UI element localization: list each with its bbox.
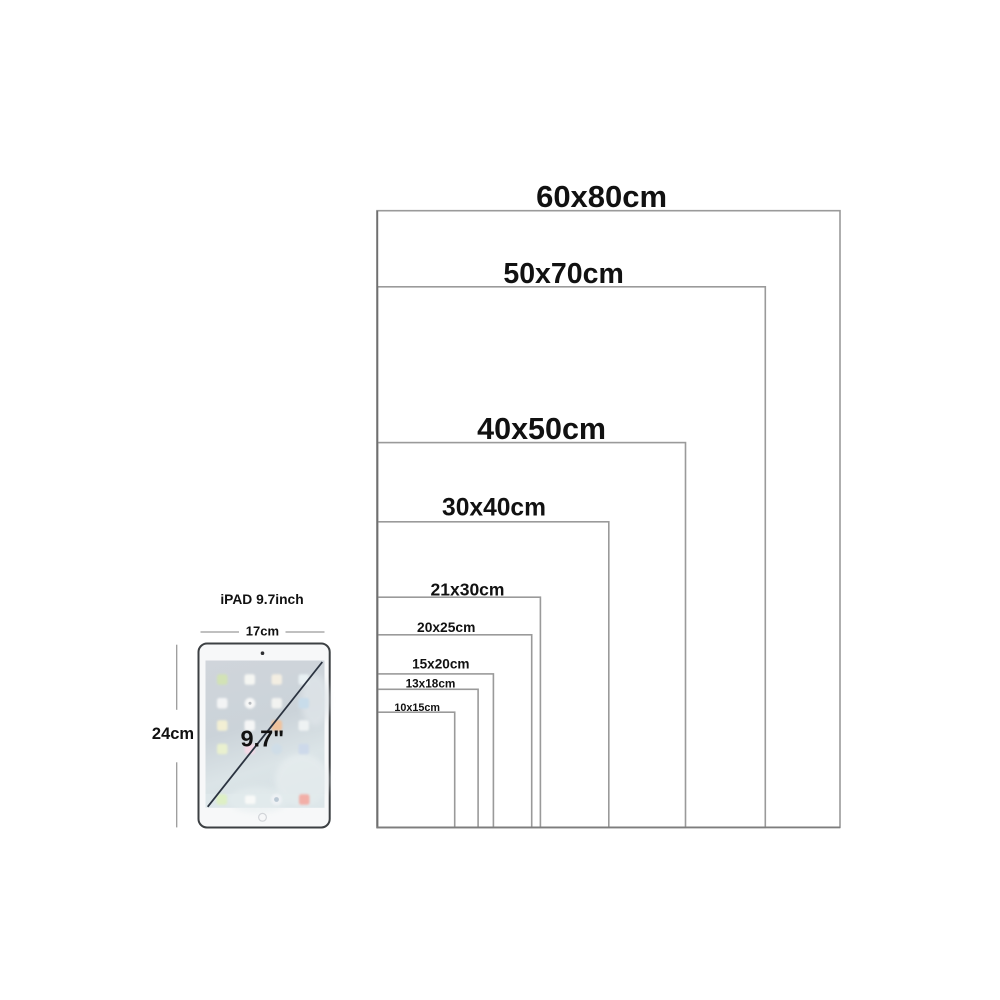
svg-text:13x18cm: 13x18cm	[406, 676, 456, 690]
svg-text:40x50cm: 40x50cm	[477, 412, 606, 446]
svg-text:24cm: 24cm	[152, 725, 194, 743]
svg-text:iPAD 9.7inch: iPAD 9.7inch	[220, 592, 303, 607]
svg-text:50x70cm: 50x70cm	[503, 258, 623, 290]
svg-text:21x30cm: 21x30cm	[431, 580, 505, 600]
svg-text:15x20cm: 15x20cm	[412, 656, 469, 671]
svg-text:20x25cm: 20x25cm	[417, 620, 475, 635]
svg-text:60x80cm: 60x80cm	[536, 179, 667, 214]
svg-text:10x15cm: 10x15cm	[394, 702, 440, 714]
svg-text:9.7": 9.7"	[240, 726, 284, 752]
svg-text:17cm: 17cm	[246, 624, 279, 639]
svg-text:30x40cm: 30x40cm	[442, 495, 546, 522]
